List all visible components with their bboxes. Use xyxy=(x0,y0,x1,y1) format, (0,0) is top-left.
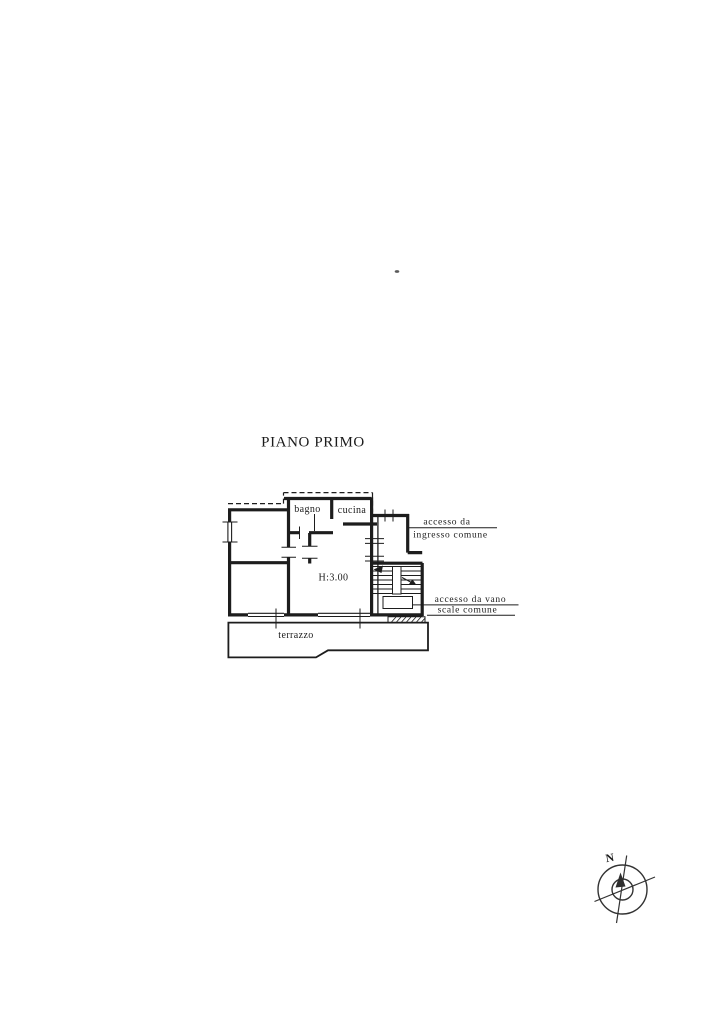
window-markings xyxy=(223,522,371,617)
room-label-bagno: bagno xyxy=(294,504,320,515)
terrace-outline xyxy=(228,623,428,658)
compass-cross-lines xyxy=(595,856,656,924)
compass-north-label: N xyxy=(605,852,616,865)
stair-newel xyxy=(393,567,402,595)
scan-speck xyxy=(395,270,400,273)
room-label-cucina: cucina xyxy=(338,505,367,516)
scanned-page: PIANO PRIMO bagno cucina xyxy=(0,0,724,1024)
floor-plan-drawing: PIANO PRIMO bagno cucina xyxy=(0,0,724,1024)
stairwell-note-line1: accesso da vano xyxy=(435,595,507,605)
compass-rose: N xyxy=(595,852,656,923)
room-label-terrazzo: terrazzo xyxy=(278,630,313,641)
page-title: PIANO PRIMO xyxy=(261,435,365,451)
ceiling-height-note: H:3.00 xyxy=(319,573,349,584)
entrance-note-line1: accesso da xyxy=(423,517,470,527)
entrance-note-line2: ingresso comune xyxy=(413,531,488,541)
stair-landing-outline xyxy=(383,597,413,609)
stairwell-note-line2: scale comune xyxy=(438,606,498,616)
compass-outer-circle xyxy=(598,865,647,914)
